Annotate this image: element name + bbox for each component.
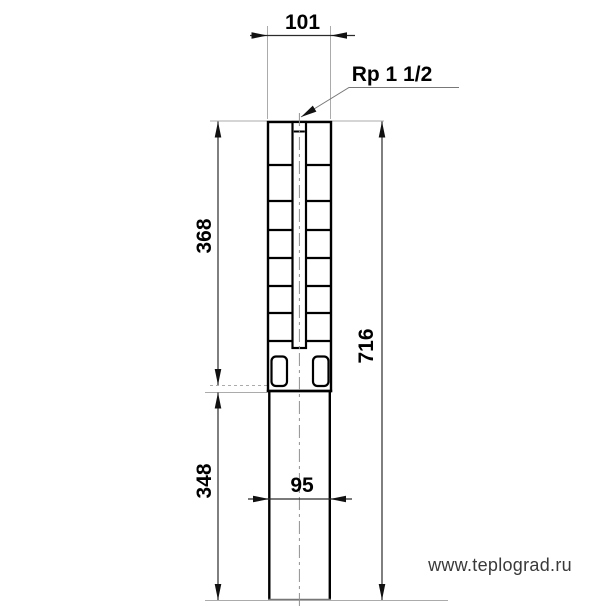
arrowhead <box>253 496 269 503</box>
watermark-text: www.teplograd.ru <box>427 555 572 575</box>
dimension-total-height: 716 <box>355 122 385 601</box>
arrowhead <box>215 122 222 138</box>
arrowhead <box>252 32 268 39</box>
dim-lower-height-label: 348 <box>193 463 216 498</box>
arrowhead <box>379 122 386 138</box>
dim-top-width-label: 101 <box>285 11 320 34</box>
dim-lower-width-label: 95 <box>290 474 314 497</box>
connection-callout: Rp 1 1/2 <box>301 63 459 117</box>
arrowhead <box>330 496 346 503</box>
pump-dimension-drawing: 101 Rp 1 1/2 368 348 716 95 www.teplogra… <box>0 0 611 611</box>
leader-arrowhead <box>301 106 316 117</box>
arrowhead <box>215 393 222 409</box>
arrowhead <box>379 584 386 600</box>
leader-line <box>301 88 459 118</box>
dim-total-height-label: 716 <box>355 328 378 363</box>
arrowhead <box>331 32 347 39</box>
arrowhead <box>215 584 222 600</box>
dimension-top-width: 101 <box>250 11 355 39</box>
arrowhead <box>215 369 222 385</box>
connection-label: Rp 1 1/2 <box>352 63 433 86</box>
dim-upper-height-label: 368 <box>193 218 216 253</box>
technical-drawing-page: 101 Rp 1 1/2 368 348 716 95 www.teplogra… <box>0 0 611 611</box>
dimension-upper-height: 368 <box>193 122 221 386</box>
dimension-lower-width: 95 <box>248 474 352 502</box>
dimension-lower-height: 348 <box>193 393 221 601</box>
